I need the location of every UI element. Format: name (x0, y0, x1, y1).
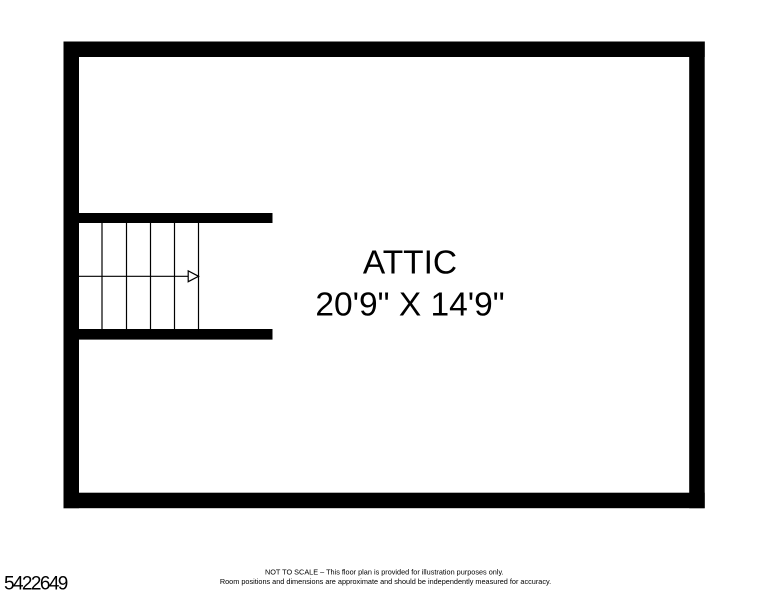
svg-text:ATTIC: ATTIC (363, 245, 457, 282)
svg-text:Room positions and dimensions: Room positions and dimensions are approx… (220, 577, 551, 586)
svg-text:20'9" X 14'9": 20'9" X 14'9" (315, 287, 504, 324)
svg-text:5422649: 5422649 (4, 574, 68, 594)
svg-text:NOT TO SCALE – This floor plan: NOT TO SCALE – This floor plan is provid… (265, 567, 504, 576)
